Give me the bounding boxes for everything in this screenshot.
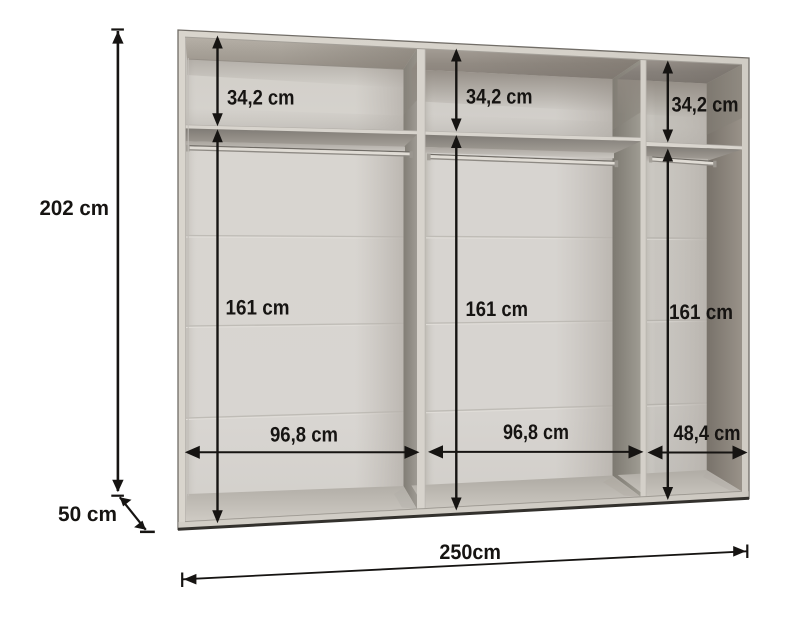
svg-text:96,8 cm: 96,8 cm bbox=[503, 421, 569, 444]
svg-text:48,4 cm: 48,4 cm bbox=[674, 422, 741, 445]
svg-text:50 cm: 50 cm bbox=[58, 503, 117, 526]
svg-text:250cm: 250cm bbox=[439, 541, 501, 564]
svg-text:34,2 cm: 34,2 cm bbox=[227, 87, 295, 110]
svg-text:34,2 cm: 34,2 cm bbox=[466, 86, 533, 109]
svg-text:161 cm: 161 cm bbox=[226, 297, 290, 320]
svg-text:34,2 cm: 34,2 cm bbox=[672, 94, 739, 117]
svg-text:161 cm: 161 cm bbox=[669, 301, 733, 324]
svg-text:161 cm: 161 cm bbox=[466, 298, 529, 321]
svg-text:202 cm: 202 cm bbox=[40, 197, 110, 220]
svg-text:96,8 cm: 96,8 cm bbox=[270, 424, 338, 447]
